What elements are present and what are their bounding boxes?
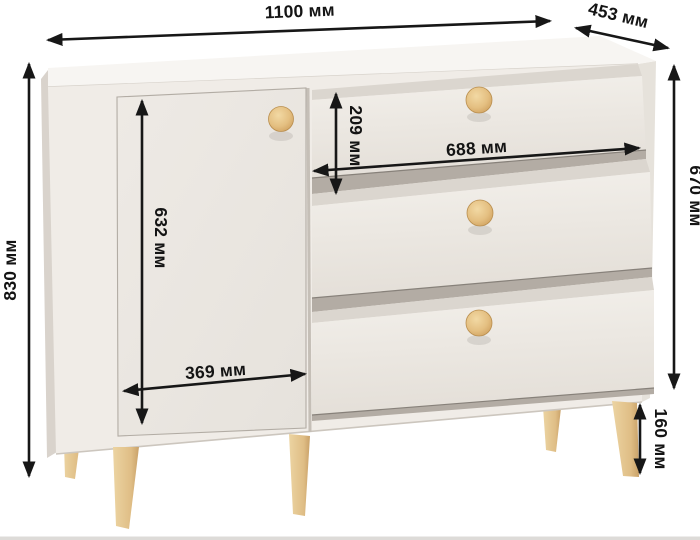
drawer-1-knob: [466, 87, 492, 113]
leg-front-left: [113, 447, 139, 529]
dim-total-width-label: 1100 мм: [264, 0, 335, 22]
drawer-3-knob-shadow: [467, 335, 491, 345]
leg-back-right: [543, 407, 561, 452]
door-drawer-partition: [308, 88, 310, 432]
dim-leg-height-label: 160 мм: [651, 408, 671, 469]
door-knob-shadow: [269, 131, 293, 141]
dim-body-height-label: 670 мм: [686, 165, 700, 226]
dim-door-height-label: 632 мм: [151, 207, 171, 268]
leg-front-middle: [289, 434, 310, 516]
dim-drawer-width-label: 688 мм: [445, 136, 507, 160]
drawer-3-knob: [466, 310, 492, 336]
product-dimension-diagram: 1100 мм 453 мм 830 мм 670 мм 632 мм 369 …: [0, 0, 700, 540]
leg-front-right: [612, 401, 639, 477]
door-knob: [269, 107, 294, 132]
dim-total-width-arrow: [48, 21, 550, 40]
dim-drawer-height-label: 209 мм: [346, 105, 366, 166]
floor-strip: [0, 537, 700, 540]
dim-total-height-label: 830 мм: [0, 239, 20, 300]
drawer-2-knob-shadow: [468, 225, 492, 235]
dresser-diagram-canvas: 1100 мм 453 мм 830 мм 670 мм 632 мм 369 …: [0, 0, 700, 540]
drawer-2-knob: [467, 200, 493, 226]
drawer-1-knob-shadow: [467, 112, 491, 122]
dim-door-width-label: 369 мм: [184, 359, 246, 383]
dim-depth-label: 453 мм: [586, 0, 650, 32]
